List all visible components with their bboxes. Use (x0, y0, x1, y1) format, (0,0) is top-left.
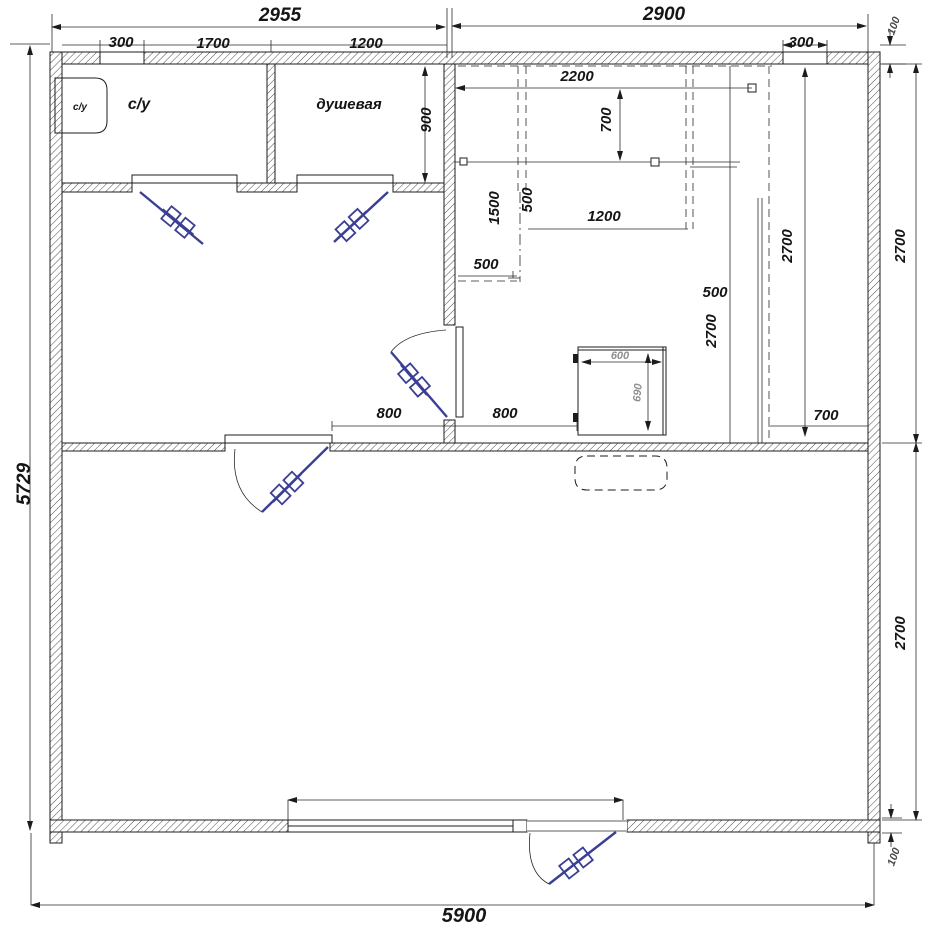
door-shower (332, 192, 388, 244)
vertical-wall-stub (444, 420, 455, 443)
window-top-right (783, 52, 827, 64)
windows (100, 52, 827, 832)
stove-door-hinge-top (573, 354, 578, 363)
lintel-middle-door (225, 435, 332, 443)
doors (140, 192, 616, 884)
middle-wall-right (330, 443, 868, 451)
dim-700-corner: 700 (813, 407, 839, 424)
stove-projection-dashed (575, 456, 667, 490)
window-top-left (100, 52, 144, 64)
hall-wall-seg1 (62, 183, 132, 192)
door-toilet (140, 192, 203, 244)
lintel-shower-door (297, 175, 393, 183)
dim-1500: 1500 (486, 191, 503, 225)
floor-plan-canvas: 2955 2900 100 300 1700 1200 300 с/у с/у … (0, 0, 926, 938)
dim-1200-top: 1200 (349, 35, 383, 52)
dim-600-stove: 600 (611, 350, 630, 362)
dim-900: 900 (418, 107, 435, 133)
middle-wall-left (62, 443, 225, 451)
stove-door-hinge-bottom (573, 413, 578, 422)
dim-800-right: 800 (492, 405, 518, 422)
door-lintels (132, 175, 463, 443)
bottom-mullion (513, 820, 527, 832)
floor-plan-drawing: 2955 2900 100 300 1700 1200 300 с/у с/у … (0, 0, 926, 938)
dim-1700: 1700 (196, 35, 230, 52)
dim-5900: 5900 (442, 905, 487, 927)
dim-2700-steam-room: 2700 (779, 229, 796, 264)
left-wall (50, 52, 62, 843)
dim-2900: 2900 (642, 4, 686, 25)
dim-500-counter-v: 500 (519, 187, 536, 213)
dim-100-top-right: 100 (885, 14, 903, 36)
door-steam (391, 330, 447, 417)
room-label-toilet: с/у (128, 96, 151, 113)
dim-2700-right-top: 2700 (892, 229, 909, 264)
dim-800-left: 800 (376, 405, 402, 422)
dim-500-steam: 500 (702, 284, 728, 301)
dim-2700-right-bottom: 2700 (892, 616, 909, 651)
right-wall (868, 52, 880, 843)
bottom-wall-left (50, 820, 288, 832)
dim-300-top-right: 300 (788, 34, 814, 51)
toilet-shower-partition (267, 64, 275, 183)
vertical-wall-top (444, 64, 455, 325)
dim-690-stove: 690 (631, 382, 645, 402)
room-label-toilet-cabin: с/у (73, 102, 87, 113)
bottom-wall-right (627, 820, 880, 832)
dim-500-counter-h: 500 (473, 256, 499, 273)
dim-300-top-left: 300 (108, 34, 134, 51)
top-wall (50, 52, 880, 64)
dim-2200: 2200 (559, 68, 594, 85)
hall-wall-seg2 (237, 183, 297, 192)
dim-100-bottom-right: 100 (885, 845, 903, 867)
dim-5729: 5729 (14, 462, 35, 505)
dim-2700-steam-inner: 2700 (703, 314, 720, 349)
dim-1200-counter: 1200 (587, 208, 621, 225)
door-entrance (529, 832, 616, 884)
lintel-toilet-door (132, 175, 237, 183)
dim-700-bench: 700 (598, 107, 615, 133)
interior-walls (62, 64, 868, 451)
door-middle (234, 447, 328, 512)
dimension-lines (10, 8, 922, 905)
hall-wall-seg3 (393, 183, 444, 192)
room-label-shower: душевая (316, 96, 381, 113)
dim-2955: 2955 (258, 5, 302, 26)
leaf-vertical-door (456, 327, 463, 417)
bottom-door-opening (527, 820, 627, 832)
